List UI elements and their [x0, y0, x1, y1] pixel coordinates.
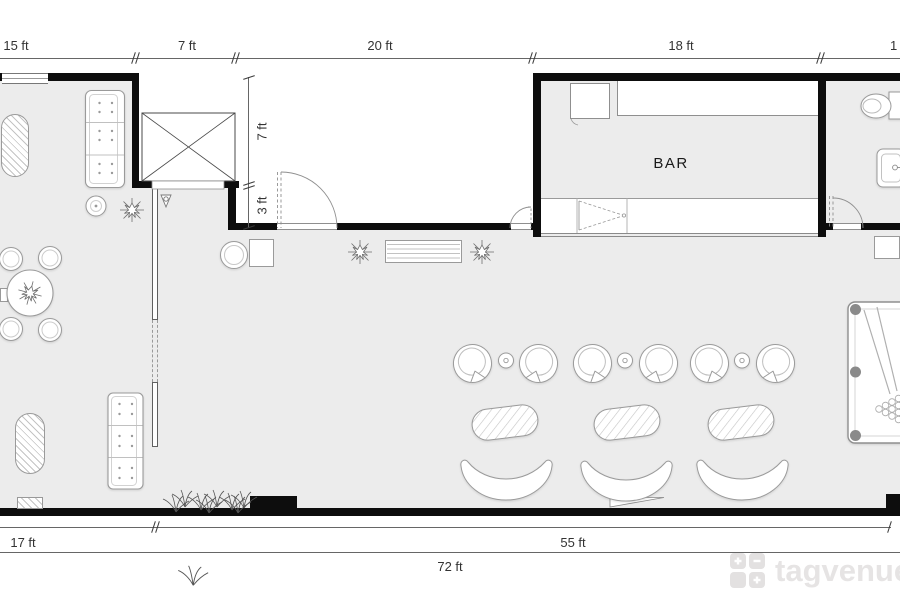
- cabinet-door-mark: [571, 119, 578, 125]
- tagvenue-logo-icon: [728, 551, 768, 591]
- elevator-shaft: [142, 113, 235, 189]
- sink: [877, 149, 900, 187]
- bar-sink-triangle: [577, 199, 627, 234]
- pool-table: [848, 302, 900, 443]
- armchair: [449, 340, 497, 388]
- bench-slats: [387, 245, 460, 259]
- dim-label-3ft-vertical: 3 ft: [255, 181, 270, 231]
- plant: [120, 198, 144, 222]
- armchair: [569, 340, 617, 388]
- ottoman: [706, 403, 775, 442]
- dim-label-20ft: 20 ft: [355, 38, 405, 53]
- dim-label-18ft: 18 ft: [656, 38, 706, 53]
- coffee-table: [499, 353, 514, 368]
- dim-label-7ft-top: 7 ft: [162, 38, 212, 53]
- bathroom-door-arc: [830, 196, 864, 228]
- dimension-line-top: [0, 58, 900, 59]
- watermark: tagvenue: [728, 551, 900, 591]
- dim-label-72ft: 72 ft: [425, 559, 475, 574]
- dim-label-55ft: 55 ft: [548, 535, 598, 550]
- ottoman: [470, 403, 539, 442]
- plant: [470, 240, 494, 264]
- round-chair-left: [221, 242, 248, 269]
- sofa-top-left: [86, 91, 125, 188]
- grass-plants: [163, 490, 257, 585]
- dimension-line-bottom-inner: [0, 527, 891, 528]
- armchair: [515, 340, 563, 388]
- dim-label-17ft: 17 ft: [0, 535, 48, 550]
- armchair: [635, 340, 683, 388]
- curved-sofa: [581, 461, 672, 501]
- wall-lamp: [161, 195, 171, 207]
- round-side-table: [86, 196, 106, 216]
- coffee-table: [735, 353, 750, 368]
- plant: [348, 240, 372, 264]
- lounge-cluster-2: [569, 340, 683, 501]
- dimension-line-right-vertical: [248, 77, 249, 228]
- symbols-overlay: [0, 0, 900, 600]
- bar-side-door-arc: [510, 207, 531, 228]
- dim-label-7ft-vertical: 7 ft: [255, 107, 270, 157]
- curved-sofa: [461, 460, 552, 500]
- dim-label-15ft: 15 ft: [0, 38, 41, 53]
- entry-door-arc: [278, 172, 338, 228]
- dim-label-cut-right: 1: [890, 38, 900, 53]
- toilet: [861, 92, 900, 119]
- coffee-table: [618, 353, 633, 368]
- dining-set: [0, 247, 62, 342]
- sofa-bottom-left: [108, 393, 143, 489]
- floorplan-canvas: 15 ft 7 ft 20 ft 18 ft 1 7 ft 3 ft 17 ft…: [0, 0, 900, 600]
- lounge-cluster-3: [686, 340, 800, 500]
- lounge-cluster-1: [449, 340, 563, 500]
- armchair: [686, 340, 734, 388]
- ottoman: [592, 403, 661, 442]
- bar-room-label: BAR: [641, 155, 701, 172]
- watermark-brand-text: tagvenue: [775, 553, 900, 589]
- curved-sofa: [697, 460, 788, 500]
- armchair: [752, 340, 800, 388]
